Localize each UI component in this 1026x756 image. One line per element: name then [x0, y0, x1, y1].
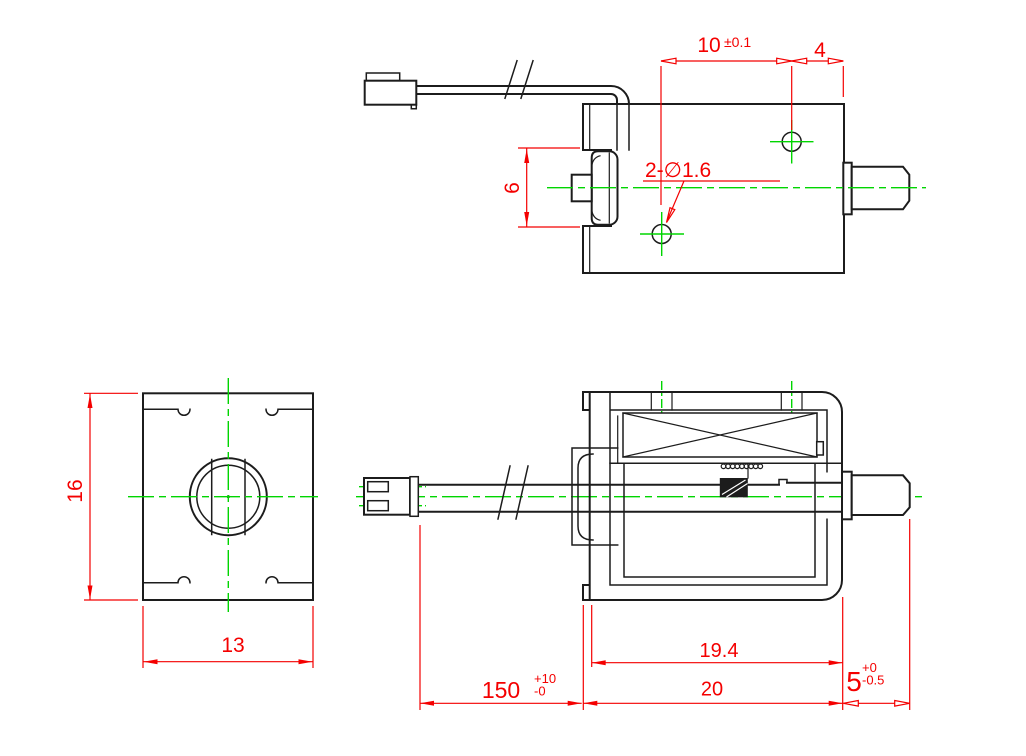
- plunger-flange-side: [842, 472, 852, 520]
- holes-label-text: 2-∅1.6: [645, 159, 711, 182]
- dim6-arrow-up: [524, 149, 529, 163]
- front-view: 16 13: [64, 378, 318, 668]
- dim-lead-length-text: 150: [482, 677, 520, 703]
- plunger-flange-top: [843, 163, 851, 215]
- magnet-block: [720, 478, 748, 497]
- dim-lead-tol-lower-text: -0: [534, 684, 546, 699]
- dim10-arrow-right: [777, 58, 792, 64]
- top-body-outline: [583, 104, 844, 273]
- connector-pin-slot-lower: [368, 501, 389, 511]
- top-plate-hole-edges: [651, 392, 802, 410]
- connector-pin-slot-upper: [368, 482, 389, 492]
- dim20-arrow-left: [583, 701, 597, 706]
- connector-body-top: [365, 81, 417, 105]
- dim150-arrow-left: [420, 701, 434, 706]
- solenoid-three-view-drawing: 10 ±0.1 4 6 2-∅1.6 16 13: [0, 0, 1026, 756]
- dim-height-text: 16: [64, 479, 87, 502]
- dim16-arrow-down: [88, 586, 93, 600]
- dim13-arrow-left: [144, 659, 158, 664]
- dim20-arrow-right: [829, 701, 843, 706]
- cad-drawing-sheet: 10 ±0.1 4 6 2-∅1.6 16 13: [0, 0, 1026, 756]
- connector-latch-top: [366, 73, 399, 81]
- dim10-arrow-left: [661, 58, 676, 64]
- dim194-arrow-left: [592, 660, 606, 665]
- dim5-arrow-right: [895, 701, 910, 707]
- dim4-arrow-right: [828, 58, 843, 64]
- return-spring: [721, 464, 762, 469]
- dim150-arrow-right: [568, 701, 582, 706]
- coil-terminal-block: [817, 442, 824, 455]
- wire-break-symbol-top: [505, 61, 533, 99]
- plunger-tip-side: [852, 475, 910, 515]
- dim-hole-pitch-text: 10: [697, 34, 720, 57]
- dim16-arrow-up: [88, 394, 93, 408]
- dim5-arrow-left: [843, 701, 858, 707]
- hole-centerlines-side: [662, 381, 792, 417]
- dim-width-text: 13: [221, 634, 244, 657]
- connector-cap-side: [410, 477, 418, 517]
- dim-tip-length-text: 5: [846, 666, 862, 697]
- dim6-arrow-down: [524, 212, 529, 226]
- side-section-view: 19.4 20 150 +10 -0 5 +0 -0.5: [356, 381, 922, 710]
- dim-hole-edge-text: 4: [814, 39, 826, 62]
- dim13-arrow-right: [299, 659, 313, 664]
- dim-inner-length-text: 19.4: [700, 640, 739, 662]
- dim-hole-pitch-tol-text: ±0.1: [724, 34, 751, 50]
- dim4-arrow-left: [792, 58, 807, 64]
- dim-tip-tol-lower-text: -0.5: [862, 673, 884, 688]
- shaft-step: [779, 480, 787, 485]
- top-view: 10 ±0.1 4 6 2-∅1.6: [365, 34, 926, 273]
- dim-body-length-text: 20: [701, 679, 723, 701]
- dim194-arrow-right: [829, 660, 843, 665]
- dim-slot-height-text: 6: [501, 182, 524, 194]
